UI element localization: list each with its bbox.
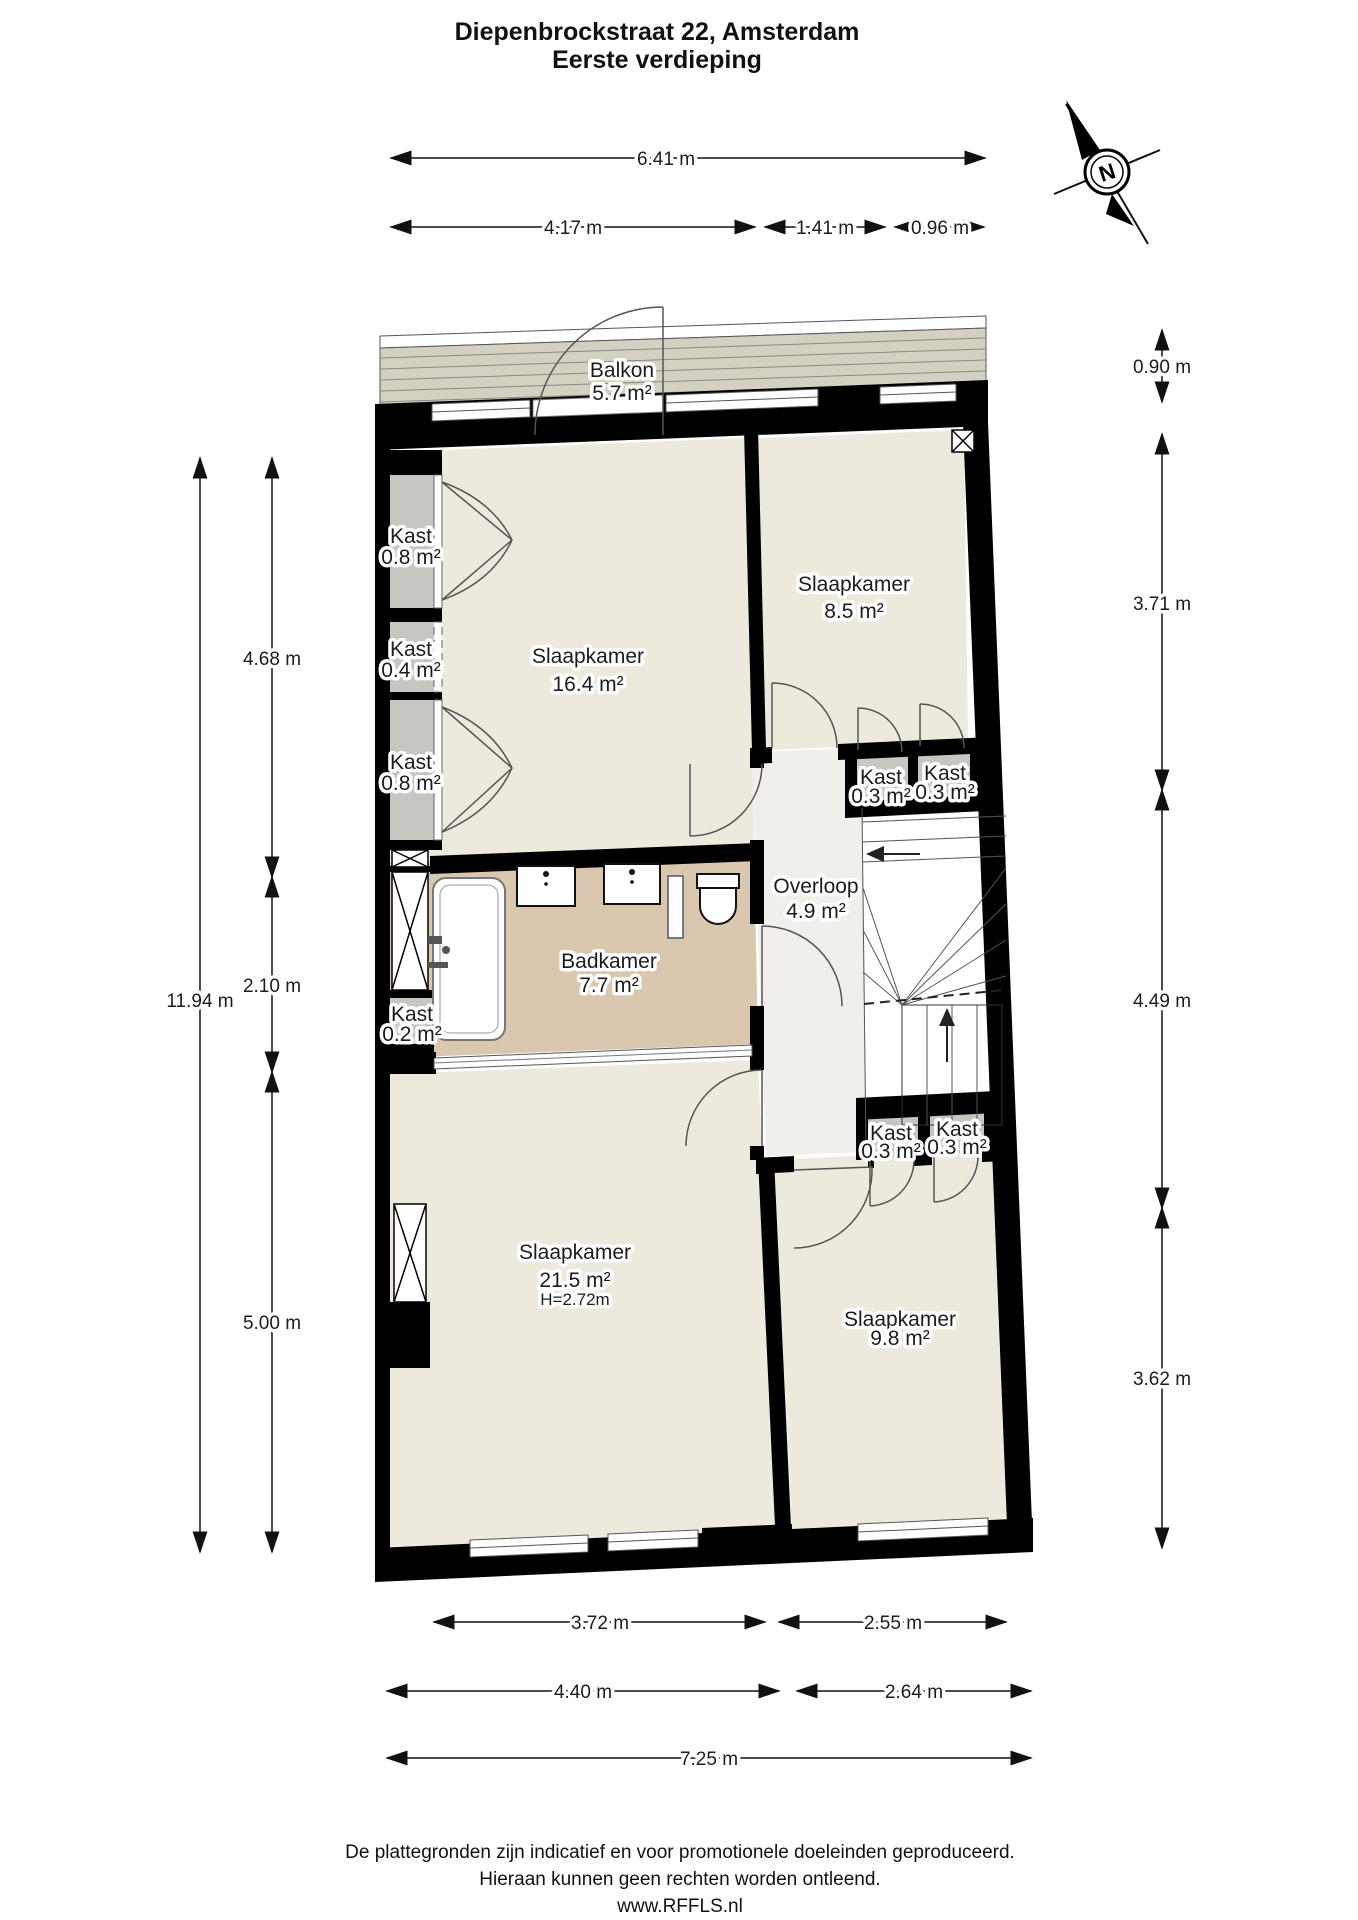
overloop-area: 4.9 m² xyxy=(786,900,846,923)
dim-left2: 2.10 m xyxy=(243,976,301,997)
wall-overloop-c xyxy=(750,1006,764,1070)
balkon-label: Balkon xyxy=(590,359,654,382)
kast-h-area: 0.3 m² xyxy=(927,1136,987,1159)
dim-left3: 5.00 m xyxy=(243,1313,301,1334)
kast-b-area: 0.4 m² xyxy=(381,659,441,682)
slaapkamer3-height: H=2.72m xyxy=(540,1290,609,1309)
floor-plan-svg: Diepenbrockstraat 22, Amsterdam Eerste v… xyxy=(0,0,1358,1920)
slaapkamer1-area: 16.4 m² xyxy=(552,673,623,696)
footer-line1: De plattegronden zijn indicatief en voor… xyxy=(345,1842,1015,1863)
wall-bottom-block xyxy=(702,1524,792,1560)
wall-sep6 xyxy=(390,990,432,998)
wall-chimney xyxy=(375,1302,430,1368)
footer-line3: www.RFFLS.nl xyxy=(616,1896,743,1917)
dim-top-total: 6.41 m xyxy=(637,149,695,170)
window-facade-1 xyxy=(432,400,530,421)
compass-rose: N xyxy=(1054,100,1160,244)
title-line1: Diepenbrockstraat 22, Amsterdam xyxy=(455,18,860,46)
radiator xyxy=(668,876,683,938)
wall-overloop-b xyxy=(750,840,764,924)
dim-right2: 3.71 m xyxy=(1133,594,1191,615)
kast-g-area: 0.3 m² xyxy=(861,1140,921,1163)
kast-f-area: 0.2 m² xyxy=(382,1023,442,1046)
shaft-box-lower xyxy=(394,1204,426,1302)
shaft-box-large xyxy=(392,872,428,990)
dim-right3: 4.49 m xyxy=(1133,991,1191,1012)
dim-left1: 4.68 m xyxy=(243,649,301,670)
badkamer-area: 7.7 m² xyxy=(579,974,639,997)
wall-sep1 xyxy=(390,450,442,475)
dim-right4: 3.62 m xyxy=(1133,1369,1191,1390)
kast-c-area: 0.8 m² xyxy=(381,772,441,795)
dim-right1: 0.90 m xyxy=(1133,357,1191,378)
dim-bottom1: 3.72 m xyxy=(571,1613,629,1634)
wall-sep3 xyxy=(390,692,442,700)
wall-badkamer-bottom-cap xyxy=(390,1052,436,1074)
compass-north-arrow xyxy=(1066,100,1100,160)
bathtub xyxy=(433,878,505,1040)
page-title: Diepenbrockstraat 22, Amsterdam Eerste v… xyxy=(455,18,860,74)
dim-top3: 0.96 m xyxy=(911,218,969,239)
kast-a-area: 0.8 m² xyxy=(381,546,441,569)
slaapkamer2-area: 8.5 m² xyxy=(824,600,884,623)
window-facade-3 xyxy=(880,384,956,404)
slaapkamer3-label: Slaapkamer xyxy=(519,1241,631,1264)
kast-c-front xyxy=(434,700,442,840)
slaapkamer4-area: 9.8 m² xyxy=(870,1327,930,1350)
wall-sep2 xyxy=(390,608,442,622)
shaft-box-small xyxy=(392,850,428,867)
dim-bottom3: 4.40 m xyxy=(554,1682,612,1703)
title-line2: Eerste verdieping xyxy=(552,46,762,74)
dim-left-total: 11.94 m xyxy=(166,991,233,1012)
kast-e-area: 0.3 m² xyxy=(915,781,975,804)
compass-tail xyxy=(1106,194,1134,226)
slaapkamer3-area: 21.5 m² xyxy=(539,1269,610,1292)
kast-d-area: 0.3 m² xyxy=(851,785,911,808)
kast-b-label: Kast xyxy=(390,638,432,661)
kast-c-label: Kast xyxy=(390,751,432,774)
badkamer-label: Badkamer xyxy=(561,950,657,973)
dim-top1: 4.17 m xyxy=(544,218,602,239)
slaapkamer1-label: Slaapkamer xyxy=(532,645,644,668)
overloop-label: Overloop xyxy=(773,875,858,898)
dim-bottom-total: 7.25 m xyxy=(680,1749,738,1770)
toilet xyxy=(697,874,739,924)
dim-top2: 1.41 m xyxy=(796,218,854,239)
wall-sep4 xyxy=(390,840,442,850)
wall-left xyxy=(375,404,390,1580)
slaapkamer2-label: Slaapkamer xyxy=(798,573,910,596)
balkon-area: 5.7 m² xyxy=(592,382,652,405)
footer-line2: Hieraan kunnen geen rechten worden ontle… xyxy=(479,1869,880,1890)
sink-1 xyxy=(517,866,575,906)
footer: De plattegronden zijn indicatief en voor… xyxy=(345,1842,1015,1917)
kast-a-front xyxy=(434,475,442,608)
dim-bottom2: 2.55 m xyxy=(864,1613,922,1634)
shaft-box-topright xyxy=(952,430,974,452)
window-bottom-2 xyxy=(608,1530,698,1551)
dim-bottom4: 2.64 m xyxy=(885,1682,943,1703)
sink-2 xyxy=(604,864,660,904)
kast-a-label: Kast xyxy=(390,525,432,548)
